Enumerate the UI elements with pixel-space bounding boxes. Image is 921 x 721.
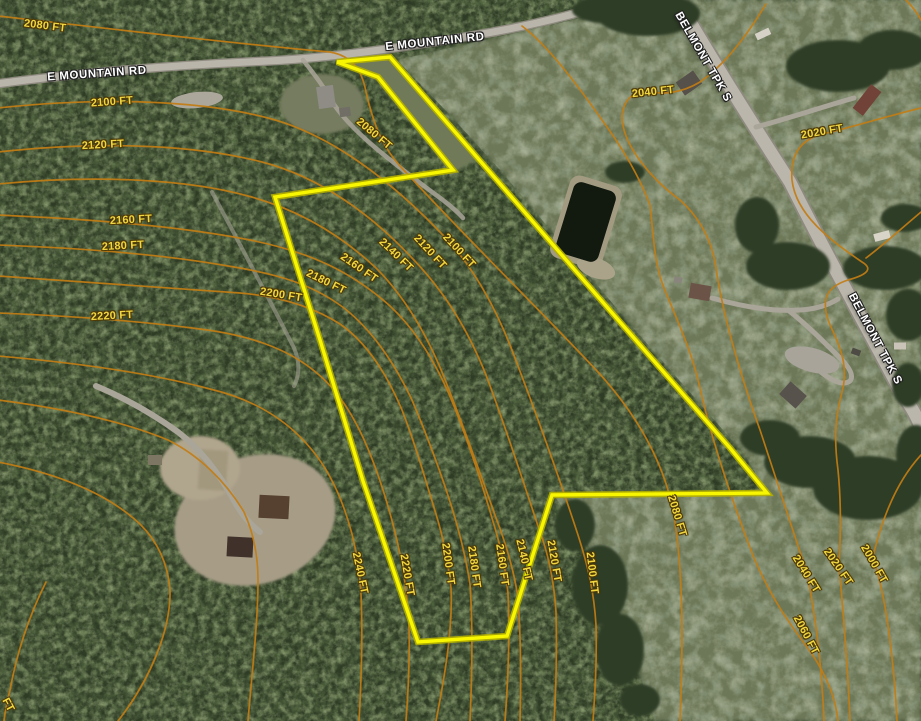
building-12 — [258, 495, 289, 520]
building-11 — [226, 536, 253, 557]
building-13 — [148, 455, 162, 465]
building-9 — [894, 343, 906, 350]
map-canvas[interactable]: 2000 FT2020 FT2020 FT2040 FT2040 FT2060 … — [0, 0, 921, 721]
building-1 — [339, 107, 351, 117]
building-0 — [316, 85, 336, 109]
satellite-map — [0, 0, 921, 721]
